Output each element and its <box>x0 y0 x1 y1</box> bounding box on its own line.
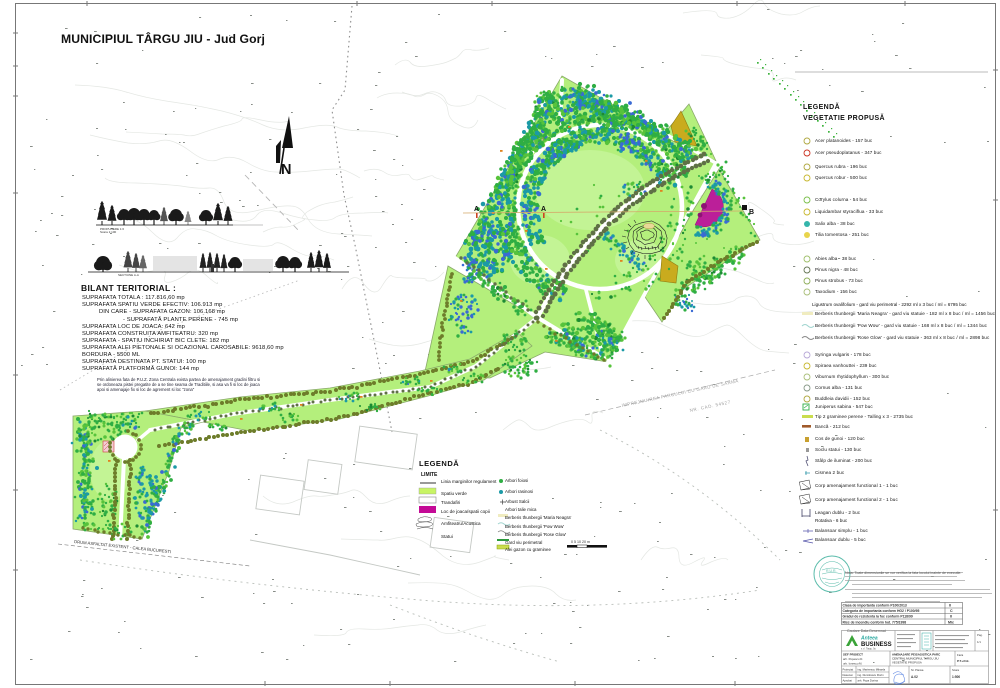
svg-text:Anteea: Anteea <box>860 636 878 642</box>
svg-text:Proiectat: Proiectat <box>843 668 854 672</box>
svg-text:SEF PROIECT: SEF PROIECT <box>843 653 863 657</box>
svg-text:N: N <box>281 162 291 178</box>
svg-text:Nr. Plansa: Nr. Plansa <box>911 668 924 672</box>
svg-text:arh. Popa Dorina: arh. Popa Dorina <box>858 679 879 683</box>
svg-text:Desenat: Desenat <box>843 673 853 677</box>
svg-text:Gradul de rezistenta la foc co: Gradul de rezistenta la foc conform P118… <box>843 615 913 619</box>
svg-text:Mic: Mic <box>948 620 954 624</box>
svg-text:1:500: 1:500 <box>952 675 960 679</box>
svg-text:arh. Popescu D.: arh. Popescu D. <box>843 657 863 661</box>
svg-text:Risc de incendiu conform hot.: Risc de incendiu conform hot. 775/1998 <box>843 620 907 624</box>
svg-text:A.02: A.02 <box>911 675 918 679</box>
svg-text:R.U.R.: R.U.R. <box>826 569 837 573</box>
svg-text:Categoria de importanta confor: Categoria de importanta conform HG2 / P1… <box>843 609 920 613</box>
svg-text:C: C <box>950 609 953 613</box>
svg-text:ing. Marinescu Mihaela: ing. Marinescu Mihaela <box>858 668 886 672</box>
svg-text:s.r.l. Targu Jiu: s.r.l. Targu Jiu <box>861 648 876 651</box>
svg-text:Aprobat: Aprobat <box>843 679 853 683</box>
svg-text:SECTIUNE A-A: SECTIUNE A-A <box>118 273 139 277</box>
svg-text:Faza: Faza <box>957 653 964 657</box>
svg-text:Pag.: Pag. <box>977 633 983 637</box>
svg-text:Clasa de importanta conform P1: Clasa de importanta conform P100/2013 <box>843 604 907 608</box>
svg-text:urb. Ionescu M.: urb. Ionescu M. <box>843 662 862 666</box>
svg-text:1/1: 1/1 <box>977 640 981 644</box>
svg-text:II: II <box>950 615 952 619</box>
svg-text:Scara: Scara <box>952 668 960 672</box>
svg-text:ing. Dumitrescu Florin: ing. Dumitrescu Florin <box>858 673 885 677</box>
svg-text:0 5 10 20 m: 0 5 10 20 m <box>571 540 590 544</box>
svg-text:II: II <box>949 604 951 608</box>
svg-text:P.T.+D.E.: P.T.+D.E. <box>957 659 970 663</box>
svg-text:VEGETATIE PROPUSA: VEGETATIE PROPUSA <box>892 661 922 665</box>
